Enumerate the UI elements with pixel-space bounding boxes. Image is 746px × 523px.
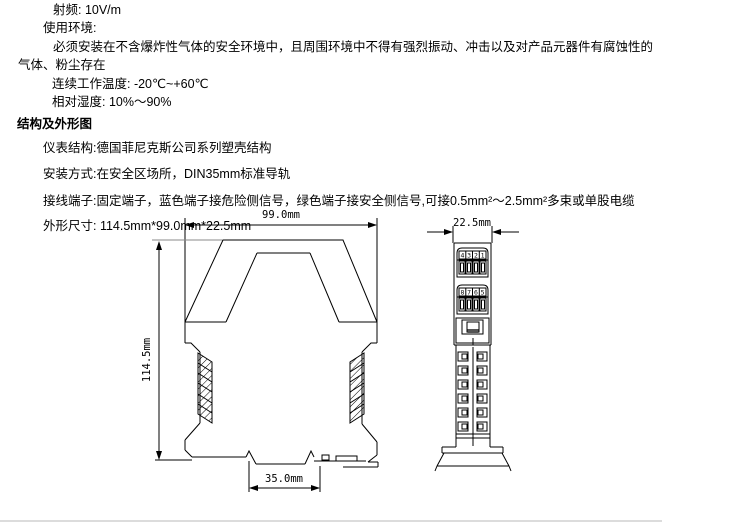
- dim-arrow-up: [156, 241, 162, 250]
- terminal-number: 8: [460, 289, 464, 297]
- dim-arrow-down: [156, 451, 162, 460]
- switch-handle: [468, 329, 479, 333]
- document-page: 射频: 10V/m 使用环境: 必须安装在不含爆炸性气体的安全环境中，且周围环境…: [0, 0, 746, 523]
- outline-drawing: 99.0mm 114.5mm: [0, 0, 746, 523]
- page-divider-line: [0, 520, 662, 522]
- dim-arrow-right: [311, 485, 320, 491]
- side-width-label: 22.5mm: [453, 217, 491, 229]
- dim-arrow-right: [368, 222, 377, 228]
- front-width-label: 99.0mm: [262, 209, 300, 221]
- terminal-number: 1: [481, 252, 485, 260]
- front-height-label: 114.5mm: [141, 338, 153, 382]
- terminal-number: 6: [474, 289, 478, 297]
- terminal-number: 2: [474, 252, 478, 260]
- front-rail-width-label: 35.0mm: [265, 473, 303, 485]
- terminal-number: 7: [467, 289, 471, 297]
- terminal-number: 3: [467, 252, 471, 260]
- terminal-number: 5: [481, 289, 485, 297]
- terminal-number: 4: [460, 252, 464, 260]
- front-view-drawing: 99.0mm 114.5mm: [141, 209, 378, 492]
- dim-arrow-right: [444, 229, 453, 235]
- side-view-drawing: 22.5mm 4 3 2 1 8 7: [427, 217, 519, 471]
- dim-arrow-left: [185, 222, 194, 228]
- dim-arrow-left: [492, 229, 501, 235]
- dim-arrow-left: [249, 485, 258, 491]
